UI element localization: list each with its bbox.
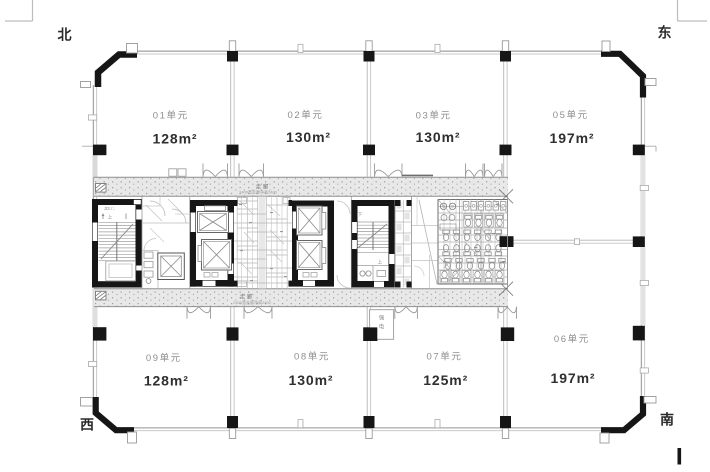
svg-text:06单元: 06单元 bbox=[554, 333, 590, 345]
svg-text:西: 西 bbox=[80, 417, 94, 433]
svg-text:北: 北 bbox=[58, 27, 72, 43]
svg-text:197m²: 197m² bbox=[550, 130, 595, 146]
svg-text:上: 上 bbox=[378, 259, 383, 265]
svg-text:130m²: 130m² bbox=[286, 129, 331, 145]
svg-text:09单元: 09单元 bbox=[146, 352, 182, 364]
svg-text:上: 上 bbox=[108, 214, 113, 220]
svg-text:128m²: 128m² bbox=[144, 373, 189, 389]
svg-text:01单元: 01单元 bbox=[153, 109, 189, 121]
svg-text:130m²: 130m² bbox=[416, 129, 461, 145]
svg-text:03单元: 03单元 bbox=[416, 109, 452, 121]
svg-text:08单元: 08单元 bbox=[294, 350, 330, 362]
svg-text:JD□□: JD□□ bbox=[104, 206, 115, 211]
svg-text:07单元: 07单元 bbox=[427, 350, 463, 362]
svg-text:125m²: 125m² bbox=[423, 372, 468, 388]
svg-text:02单元: 02单元 bbox=[288, 109, 324, 121]
svg-text:东: 东 bbox=[658, 25, 672, 41]
svg-text:电: 电 bbox=[379, 323, 385, 331]
svg-text:2400宽走廊净高2400: 2400宽走廊净高2400 bbox=[233, 299, 272, 305]
svg-text:05单元: 05单元 bbox=[553, 109, 589, 121]
svg-text:走 廊: 走 廊 bbox=[240, 292, 253, 300]
svg-text:197m²: 197m² bbox=[551, 370, 596, 386]
svg-text:2400宽走廊净高2400: 2400宽走廊净高2400 bbox=[239, 189, 278, 195]
svg-text:128m²: 128m² bbox=[153, 130, 198, 146]
svg-text:强: 强 bbox=[379, 315, 385, 322]
svg-text:南: 南 bbox=[660, 412, 674, 428]
svg-text:130m²: 130m² bbox=[289, 372, 334, 388]
